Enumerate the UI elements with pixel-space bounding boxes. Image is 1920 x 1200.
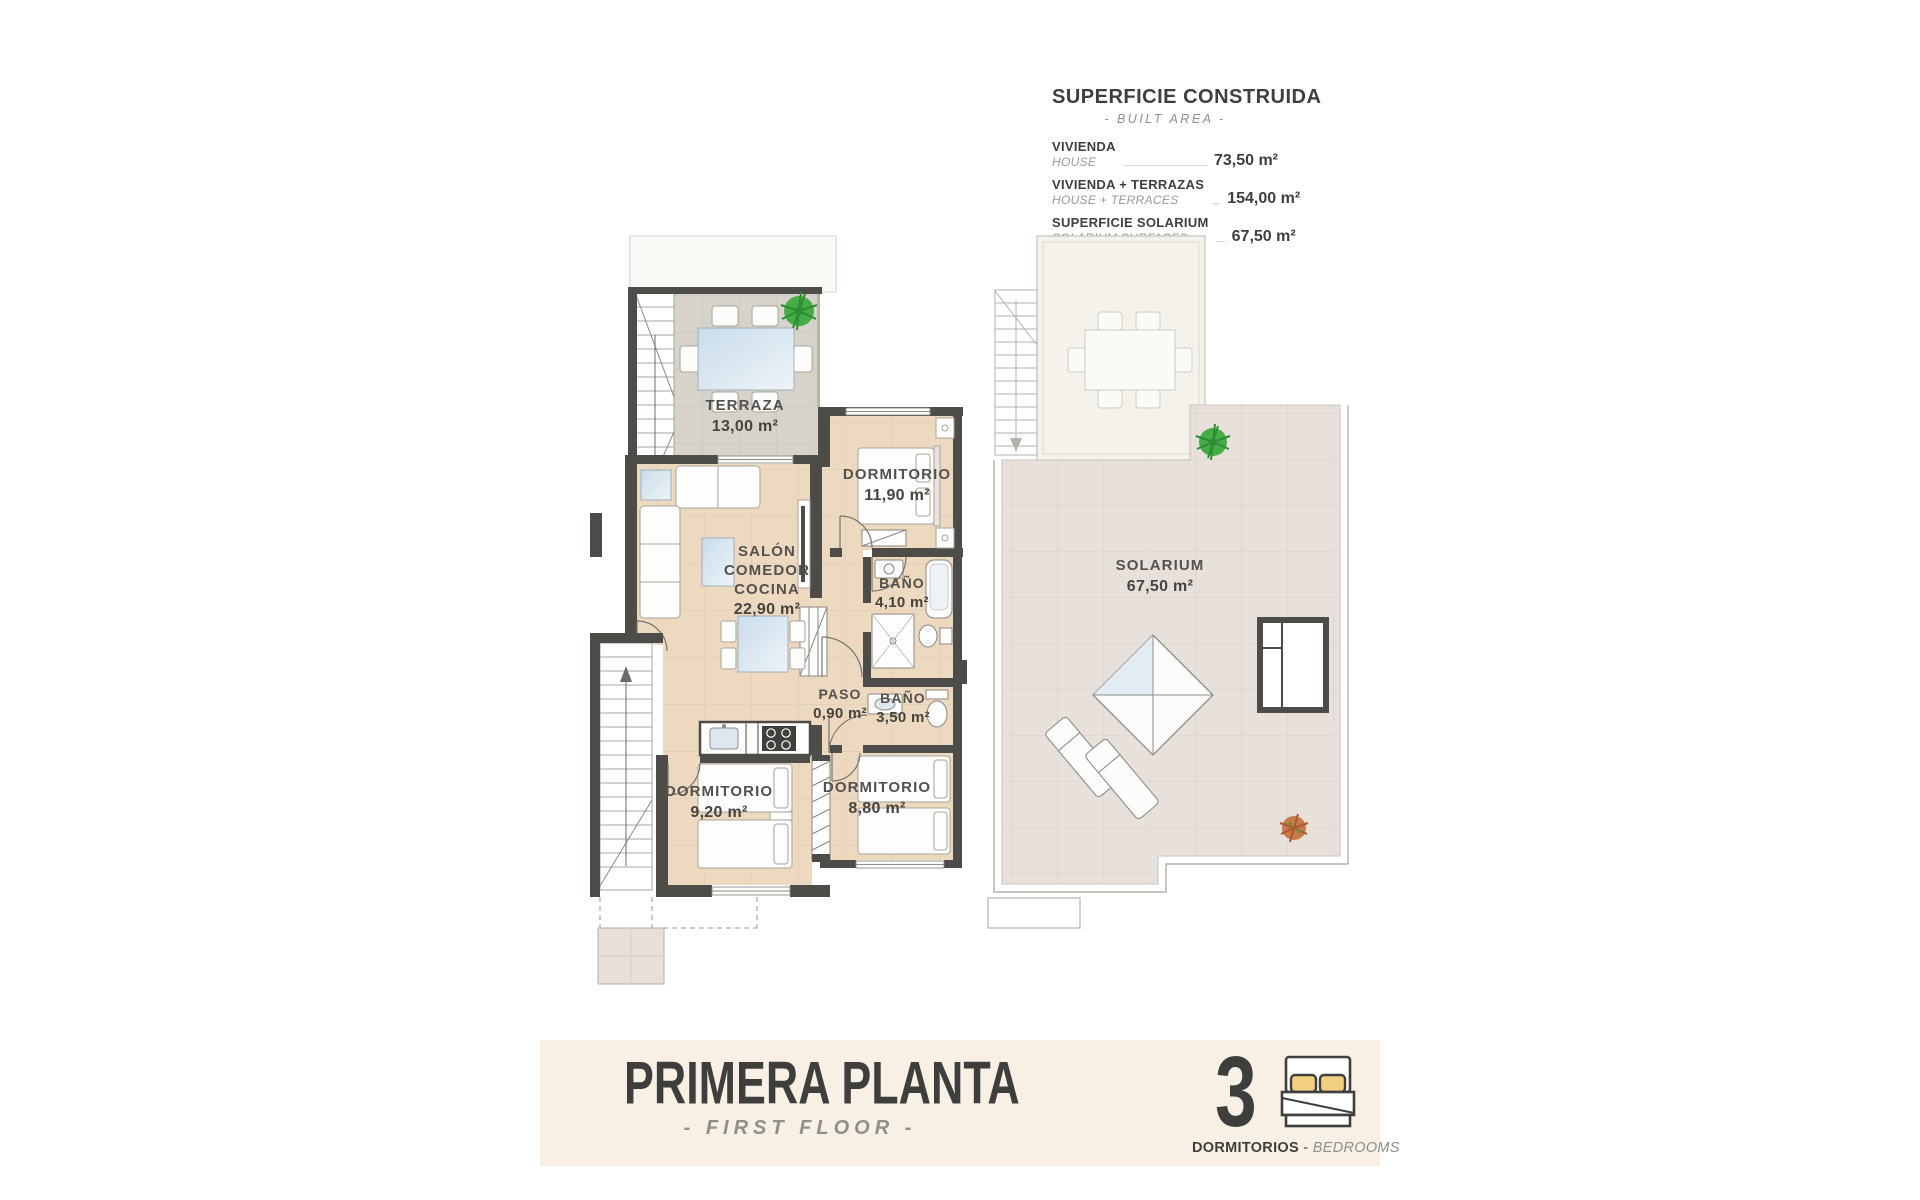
roof-overhang-outline [630, 236, 836, 292]
row-label-en: HOUSE + TERRACES [1052, 193, 1204, 207]
row-value: 73,50 m² [1214, 152, 1278, 170]
area-table-title: SUPERFICIE CONSTRUIDA [1052, 86, 1278, 109]
room-label-bano-1: BAÑO 4,10 m² [875, 575, 929, 611]
room-label-dormitorio-2: DORMITORIO 9,20 m² [665, 783, 773, 822]
area-row-vivienda-terrazas: VIVIENDA + TERRAZAS HOUSE + TERRACES 154… [1052, 177, 1278, 207]
solarium-plan [980, 225, 1365, 1015]
row-label-es: VIVIENDA [1052, 139, 1116, 154]
floorplan-page: SUPERFICIE CONSTRUIDA - BUILT AREA - VIV… [0, 0, 1920, 1200]
floor-title-block: PRIMERA PLANTA - FIRST FLOOR - [580, 1050, 1020, 1140]
stair-bulkhead [1260, 620, 1326, 710]
row-label-en: HOUSE [1052, 155, 1116, 169]
bedrooms-count: 3 [1215, 1048, 1257, 1136]
leader-line [1212, 203, 1220, 204]
leader-line [1124, 165, 1207, 166]
room-label-dormitorio-principal: DORMITORIO 11,90 m² [843, 466, 951, 505]
bedrooms-badge: 3 DORMITORIOS - BEDROOMS [1192, 1048, 1377, 1156]
area-table-subtitle: - BUILT AREA - [1052, 112, 1278, 126]
row-value: 154,00 m² [1227, 190, 1300, 208]
terrace-sliding-door [628, 455, 822, 464]
room-label-bano-2: BAÑO 3,50 m² [876, 690, 930, 726]
room-label-solarium: SOLARIUM 67,50 m² [1116, 557, 1205, 596]
area-row-vivienda: VIVIENDA HOUSE 73,50 m² [1052, 139, 1278, 169]
kitchen-counter [700, 722, 810, 755]
built-area-table: SUPERFICIE CONSTRUIDA - BUILT AREA - VIV… [1052, 86, 1278, 245]
floor-subtitle: - FIRST FLOOR - [580, 1117, 1020, 1140]
ghost-staircase [995, 290, 1037, 455]
row-label-es: VIVIENDA + TERRAZAS [1052, 177, 1204, 192]
first-floor-plan [560, 225, 1005, 1015]
room-label-dormitorio-3: DORMITORIO 8,80 m² [823, 779, 931, 818]
room-label-paso: PASO 0,90 m² [813, 686, 867, 722]
footer-banner: PRIMERA PLANTA - FIRST FLOOR - 3 DORMITO… [540, 1040, 1380, 1166]
room-label-salon: SALÓN COMEDOR COCINA 22,90 m² [724, 543, 810, 619]
double-bed-icon [1275, 1054, 1361, 1130]
ghost-terrace-outline [1037, 236, 1205, 460]
room-label-terraza: TERRAZA 13,00 m² [705, 397, 784, 436]
floor-title: PRIMERA PLANTA [624, 1047, 976, 1117]
